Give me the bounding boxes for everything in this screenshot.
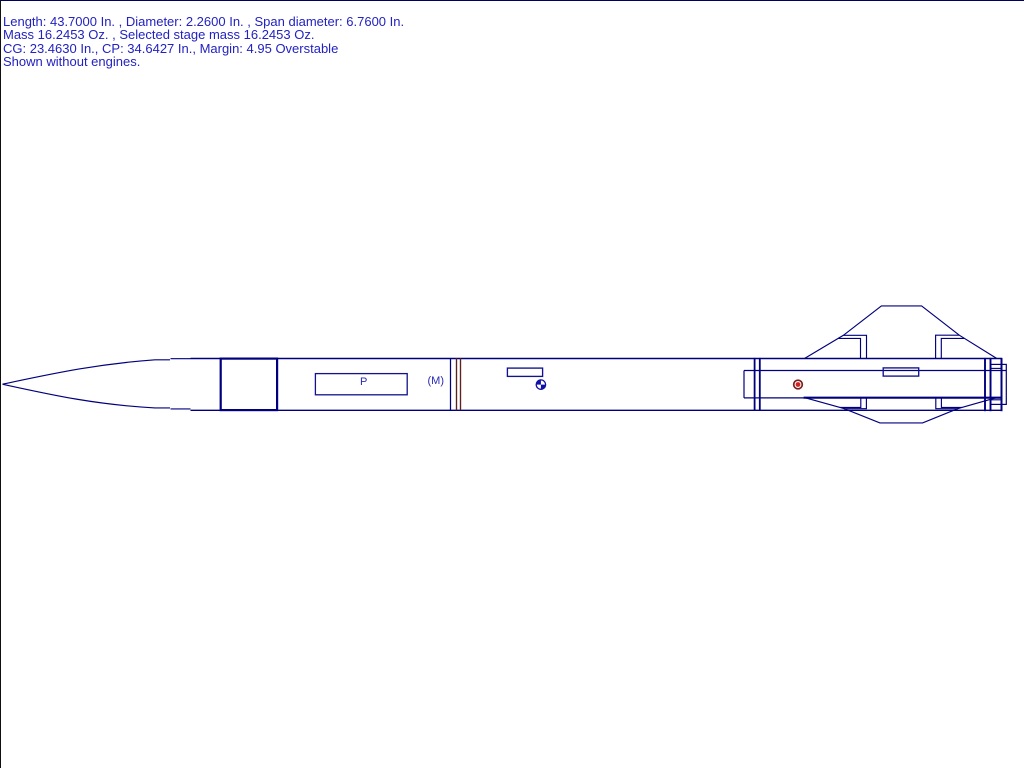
svg-text:(M): (M) bbox=[428, 375, 445, 387]
svg-text:P: P bbox=[360, 376, 367, 388]
